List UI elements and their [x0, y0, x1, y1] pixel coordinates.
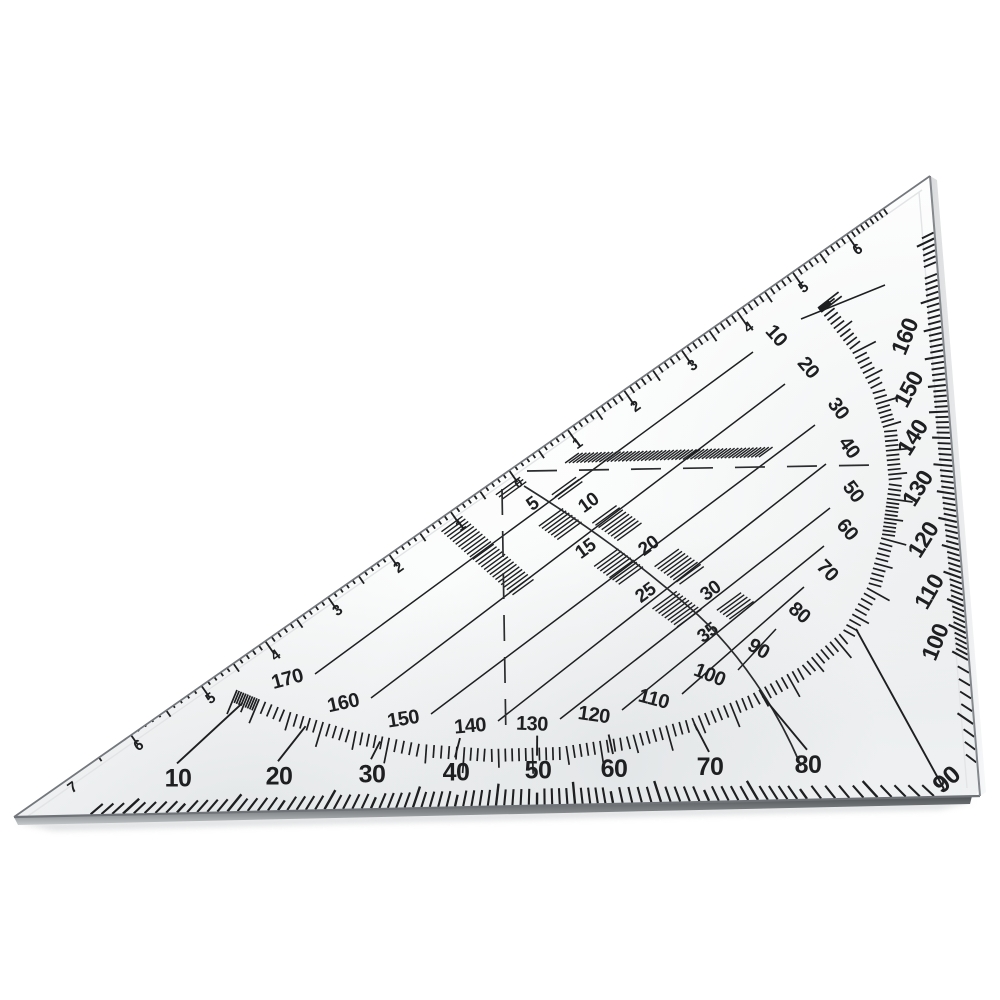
arc-degree-label: 140	[453, 714, 487, 739]
ruler-tick	[107, 741, 112, 748]
right-tick	[933, 390, 946, 391]
right-tick	[938, 449, 951, 450]
arc-degree-label: 120	[577, 702, 612, 728]
arc-tick	[441, 746, 442, 759]
body-shading	[0, 160, 1000, 1000]
ruler-tick	[100, 745, 105, 752]
arc-degree-label: 130	[516, 713, 549, 736]
right-degree-label: 170	[0, 0, 18, 13]
bottom-degree-label: 70	[697, 753, 724, 781]
ruler-tick	[87, 754, 92, 761]
ruler-tick	[67, 766, 72, 773]
bottom-tick	[512, 789, 513, 805]
photo-background: 5101520253035 17016015014013012011010090…	[0, 0, 1000, 1000]
arc-tick	[484, 749, 485, 762]
right-tick	[935, 406, 948, 407]
bottom-degree-label: 20	[266, 762, 293, 790]
ruler-tick	[50, 778, 55, 785]
bottom-degree-label: 10	[165, 764, 192, 792]
right-tick	[938, 454, 951, 455]
bottom-tick	[521, 789, 522, 805]
bottom-tick	[552, 788, 553, 804]
right-tick	[934, 401, 947, 402]
bottom-degree-label: 50	[525, 757, 552, 785]
ruler-tick	[113, 737, 118, 744]
ruler-tick	[40, 785, 45, 792]
right-tick	[929, 412, 948, 413]
bottom-degree-label: 40	[443, 758, 470, 786]
geometry-set-square-protractor: 5101520253035 17016015014013012011010090…	[0, 0, 1000, 1000]
right-tick	[939, 459, 952, 460]
arc-tick	[448, 746, 449, 759]
arc-tick	[498, 749, 499, 768]
arc-tick	[433, 745, 434, 758]
bottom-degree-label: 80	[795, 751, 822, 779]
right-tick	[934, 396, 947, 397]
ruler-tick	[80, 758, 85, 765]
bottom-degree-label: 60	[601, 755, 628, 783]
ruler-tick	[45, 782, 50, 789]
bottom-degree-label: 30	[359, 760, 386, 788]
arc-tick	[470, 748, 471, 761]
arc-tick	[477, 748, 478, 761]
bottom-tick	[566, 788, 567, 804]
bottom-tick	[559, 788, 560, 804]
ruler-tick	[55, 774, 60, 781]
ruler-tick	[74, 762, 79, 769]
